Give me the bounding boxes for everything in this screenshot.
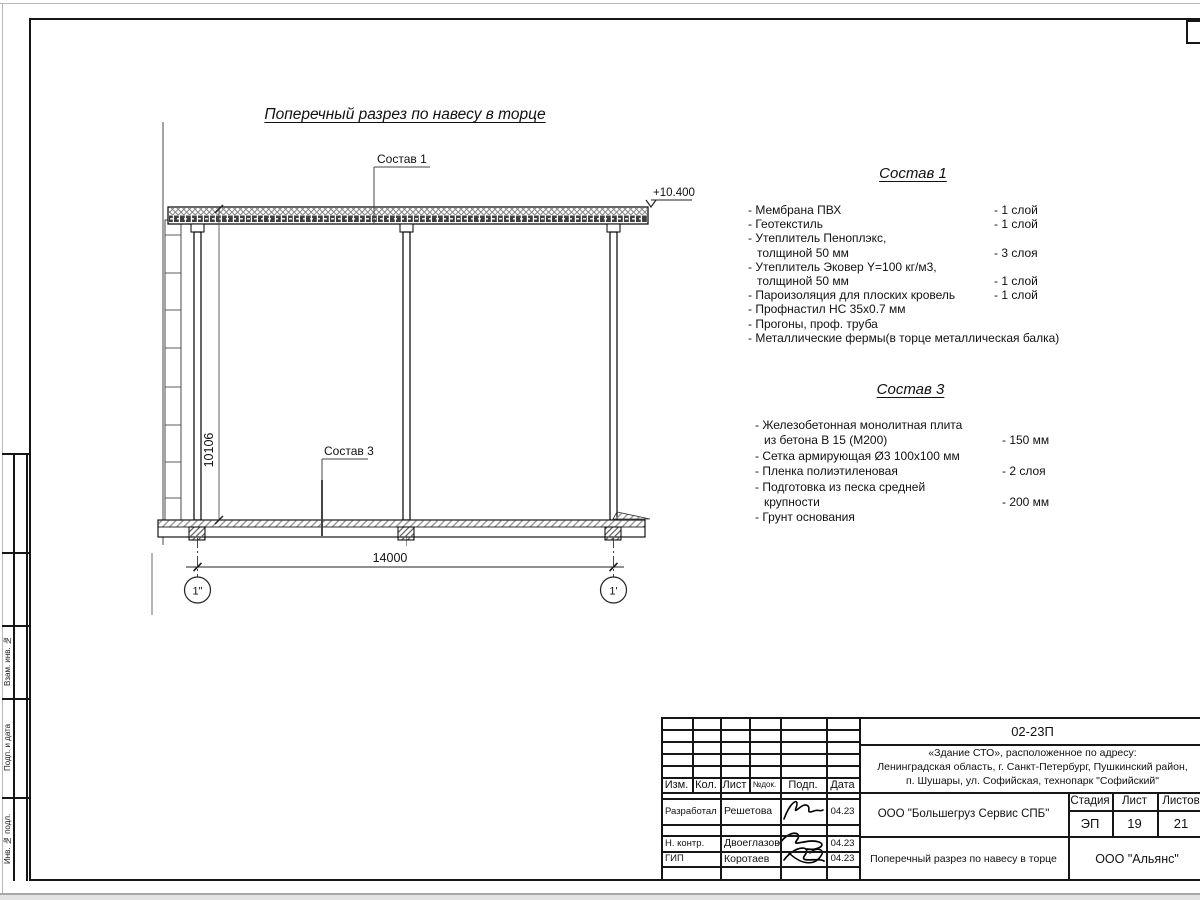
object-line: п. Шушары, ул. Софийская, технопарк "Соф… [861,774,1200,788]
titleblock-rule [661,824,859,826]
material-line: - Утеплитель Эковер Y=100 кг/м3, [748,260,1098,274]
titleblock-rule [859,836,1200,838]
object-line: «Здание СТО», расположенное по адресу: [861,746,1200,760]
dim-height: 10106 [202,205,223,524]
header-kol: Кол. [693,778,719,791]
titleblock-rule [661,866,859,868]
sheet-value: 19 [1113,811,1156,835]
titleblock-rule [661,729,859,731]
titleblock-rule [859,717,861,881]
material-qty: - 1 слой [994,203,1038,217]
material-qty: - 2 слоя [1002,464,1046,479]
titleblock-rule [661,792,1200,794]
material-line: - Подготовка из песка средней [755,480,1095,495]
axis-bubbles: 1" 1' [185,577,627,603]
row-role: Разработал [662,800,722,822]
titleblock-doc-number: 02-23П [861,719,1200,743]
axis-right-label: 1' [609,586,617,598]
material-qty: - 1 слой [994,274,1038,288]
drawing-title: Поперечный разрез по навесу в торце [255,106,555,124]
material-line: толщиной 50 мм- 1 слой [748,274,1098,288]
titleblock-rule [2,625,29,627]
columns [191,224,620,520]
elevation-value: +10.400 [653,187,695,199]
sostav3-ref-label: Состав 3 [324,444,374,458]
material-qty: - 150 мм [1002,433,1049,448]
titleblock-company: ООО "Альянс" [1070,838,1200,880]
roof-assembly [168,207,648,224]
row-name: Коротаев [721,852,782,865]
titleblock-rule [13,453,15,881]
titleblock-rule [26,453,28,881]
object-line: Ленинградская область, г. Санкт-Петербур… [861,760,1200,774]
titleblock-object: «Здание СТО», расположенное по адресу: Л… [861,746,1200,790]
material-line: из бетона В 15 (М200)- 150 мм [755,433,1095,448]
drawing-sheet-page: { "drawing": { "title": "Поперечный разр… [0,0,1200,900]
row-name: Решетова [721,800,782,822]
material-line: - Железобетонная монолитная плита [755,418,1095,433]
material-line: - Мембрана ПВХ- 1 слой [748,203,1098,217]
titleblock-rule [661,851,859,853]
row-role: ГИП [662,852,722,865]
sheet-label: Лист [1113,793,1156,809]
row-name: Двоеглазов [721,836,782,850]
titleblock-org: ООО "Большегруз Сервис СПБ" [861,794,1066,834]
material-line: - Геотекстиль- 1 слой [748,217,1098,231]
sostav1-ref-label: Состав 1 [377,152,427,166]
titleblock-rule [661,753,859,755]
material-qty: - 1 слой [994,288,1038,302]
titleblock-rule [2,797,29,799]
signature-razrabotal [781,796,825,823]
sostav1-list: - Мембрана ПВХ- 1 слой- Геотекстиль- 1 с… [748,203,1098,345]
material-line: - Утеплитель Пеноплэкс, [748,231,1098,245]
material-line: - Прогоны, проф. труба [748,317,1098,331]
sostav3-heading: Состав 3 [748,381,1073,398]
dim-height-value: 10106 [202,433,216,468]
titleblock-rule [661,798,859,800]
sheets-label: Листов [1158,793,1200,809]
axis-left-label: 1" [192,586,202,598]
titleblock-rule [661,835,859,837]
header-ndok: №док. [750,778,779,791]
titleblock-rule [661,717,1200,719]
material-line: - Сетка армирующая Ø3 100х100 мм [755,449,1095,464]
stage-value: ЭП [1069,811,1111,835]
dim-width-value: 14000 [373,551,408,565]
dim-width: 14000 [186,538,624,577]
material-line: - Грунт основания [755,510,1095,525]
titleblock-rule [2,698,29,700]
material-line: - Профнастил НС 35х0.7 мм [748,302,1098,316]
material-qty: - 3 слоя [994,246,1038,260]
titleblock-rule [1068,810,1200,812]
stage-label: Стадия [1069,793,1111,809]
row-role: Н. контр. [662,836,722,850]
header-list: Лист [721,778,748,791]
titleblock-rule [2,453,29,455]
material-line: - Металлические фермы(в торце металличес… [748,331,1098,345]
header-podp: Подп. [781,778,825,791]
row-date: 04.23 [827,800,858,822]
sostav1-heading: Состав 1 [748,165,1078,182]
material-qty: - 200 мм [1002,495,1049,510]
material-line: - Пленка полиэтиленовая- 2 слоя [755,464,1095,479]
titleblock-sheet-title: Поперечный разрез по навесу в торце [861,838,1066,880]
sostav3-list: - Железобетонная монолитная плитаиз бето… [755,418,1095,526]
adjacent-building-wall [152,122,181,615]
titleblock-rule [1112,792,1114,836]
material-line: - Пароизоляция для плоских кровель- 1 сл… [748,288,1098,302]
titleblock-rule [661,741,859,743]
titleblock-rule [1157,792,1159,836]
titleblock-rule [2,552,29,554]
titleblock-rule [661,765,859,767]
header-izm: Изм. [662,778,691,791]
elevation-mark: +10.400 [646,187,695,207]
header-data: Дата [827,778,858,791]
sheets-value: 21 [1158,811,1200,835]
titleblock-rule [661,777,859,779]
titleblock-rule [859,744,1200,746]
material-qty: - 1 слой [994,217,1038,231]
material-line: толщиной 50 мм- 3 слоя [748,246,1098,260]
material-line: крупности- 200 мм [755,495,1095,510]
